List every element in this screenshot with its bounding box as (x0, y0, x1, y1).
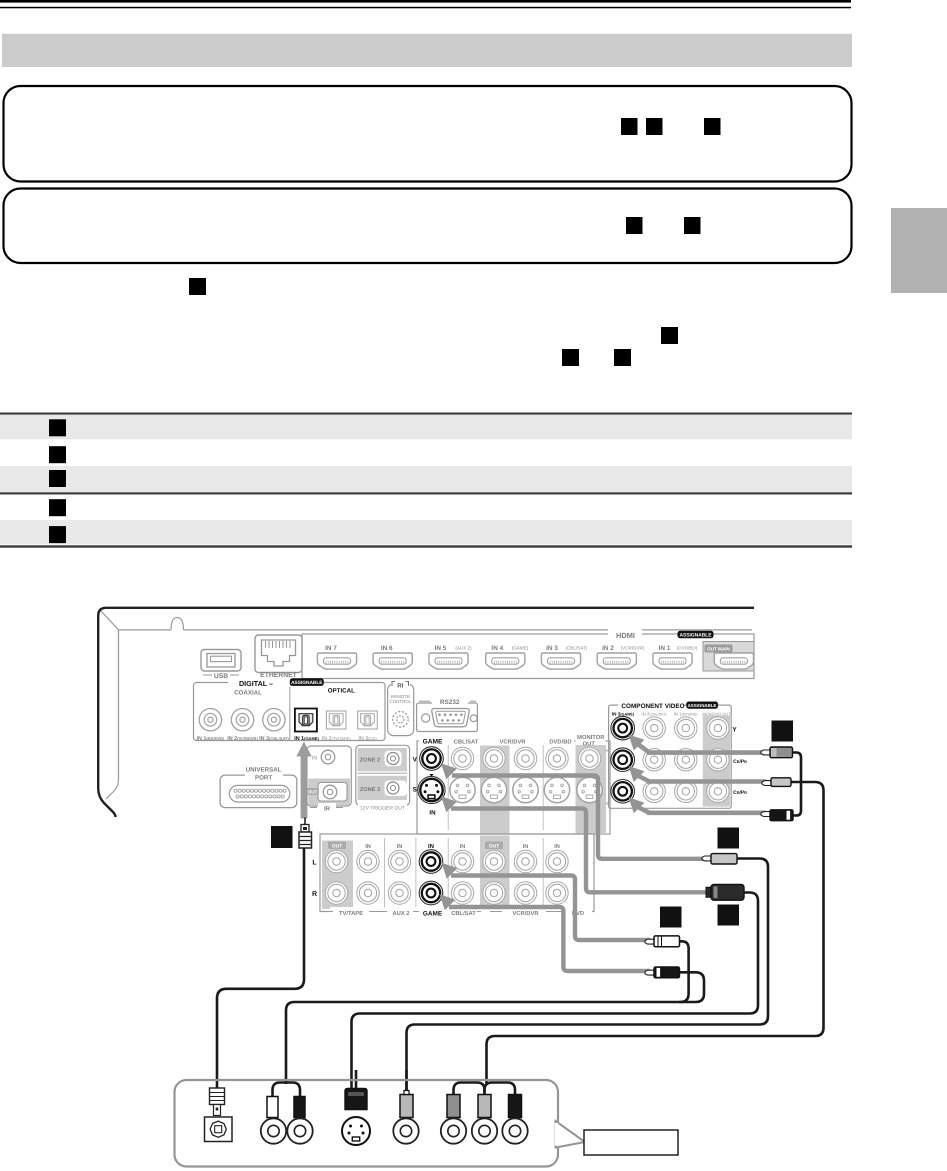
svg-text:IN: IN (397, 844, 403, 850)
svg-text:OUT: OUT (332, 844, 343, 850)
svg-text:MONITOR OUT: MONITOR OUT (702, 711, 731, 716)
svg-text:Y: Y (732, 726, 737, 733)
svg-text:IN: IN (428, 843, 434, 850)
svg-text:(DVD/BD): (DVD/BD) (677, 645, 698, 650)
svg-text:IR: IR (324, 806, 331, 813)
svg-text:12V TRIGGER OUT: 12V TRIGGER OUT (360, 806, 405, 812)
svg-text:IN 4: IN 4 (491, 645, 503, 652)
svg-text:ASSIGNABLE: ASSIGNABLE (291, 680, 323, 686)
svg-text:IN 3: IN 3 (546, 645, 558, 652)
svg-text:GAME: GAME (423, 739, 443, 746)
svg-text:UNIVERSAL: UNIVERSAL (246, 767, 282, 774)
svg-text:VCR/DVR: VCR/DVR (499, 738, 526, 745)
svg-text:COMPONENT VIDEO: COMPONENT VIDEO (621, 703, 684, 710)
svg-text:ASSIGNABLE: ASSIGNABLE (679, 633, 712, 639)
svg-text:VCR/DVR: VCR/DVR (512, 910, 539, 917)
svg-text:ZONE 3: ZONE 3 (360, 787, 380, 793)
svg-text:RI: RI (397, 682, 403, 689)
svg-text:IN 1(DVD/BD): IN 1(DVD/BD) (674, 711, 698, 716)
svg-text:USB: USB (214, 673, 228, 680)
svg-text:V: V (413, 757, 418, 764)
svg-text:HDMI: HDMI (616, 631, 635, 640)
svg-text:S: S (413, 787, 418, 794)
svg-text:IN 6: IN 6 (381, 645, 393, 652)
svg-text:OUT: OUT (308, 790, 318, 795)
svg-text:IN 2(CBL/SAT): IN 2(CBL/SAT) (641, 711, 666, 716)
svg-text:IN 3(GAME): IN 3(GAME) (612, 711, 635, 716)
svg-text:CBL/SAT: CBL/SAT (454, 738, 479, 745)
svg-text:CONTROL: CONTROL (390, 699, 412, 704)
svg-text:TV/TAPE: TV/TAPE (339, 910, 363, 917)
svg-text:IN 7: IN 7 (325, 645, 337, 652)
svg-text:IN: IN (312, 756, 317, 762)
svg-text:IN: IN (365, 844, 371, 850)
svg-text:GAME: GAME (423, 910, 443, 917)
svg-text:ASSIGNABLE: ASSIGNABLE (688, 703, 717, 708)
svg-text:IN: IN (460, 844, 466, 850)
svg-text:RS232: RS232 (440, 699, 460, 706)
svg-text:COAXIAL: COAXIAL (234, 689, 262, 696)
svg-text:IN: IN (554, 844, 560, 850)
svg-text:IN: IN (523, 844, 529, 850)
svg-text:(AUX 2): (AUX 2) (455, 645, 472, 650)
svg-text:(CBL/SAT): (CBL/SAT) (566, 645, 588, 650)
svg-text:IN: IN (429, 810, 436, 817)
svg-text:R: R (312, 891, 317, 898)
svg-text:OUT: OUT (489, 844, 500, 850)
svg-text:L: L (312, 860, 317, 867)
svg-text:OPTICAL: OPTICAL (328, 688, 355, 695)
svg-text:PORT: PORT (255, 775, 272, 782)
svg-text:(VCR/DVR): (VCR/DVR) (621, 645, 645, 650)
svg-text:IN 5: IN 5 (435, 645, 447, 652)
svg-text:OUT: OUT (583, 740, 596, 747)
svg-text:CBL/SAT: CBL/SAT (451, 910, 476, 917)
svg-text:OUT MAIN: OUT MAIN (707, 647, 730, 652)
svg-text:AUX 2: AUX 2 (392, 910, 409, 917)
svg-text:IN 1: IN 1 (659, 645, 671, 652)
svg-text:(GAME): (GAME) (512, 645, 529, 650)
svg-text:IN 2: IN 2 (602, 645, 614, 652)
svg-text:DVD/BD: DVD/BD (549, 738, 571, 745)
svg-text:DIGITAL –: DIGITAL – (239, 679, 273, 688)
svg-text:ZONE 2: ZONE 2 (360, 758, 380, 764)
svg-text:MONITOR: MONITOR (577, 734, 605, 741)
